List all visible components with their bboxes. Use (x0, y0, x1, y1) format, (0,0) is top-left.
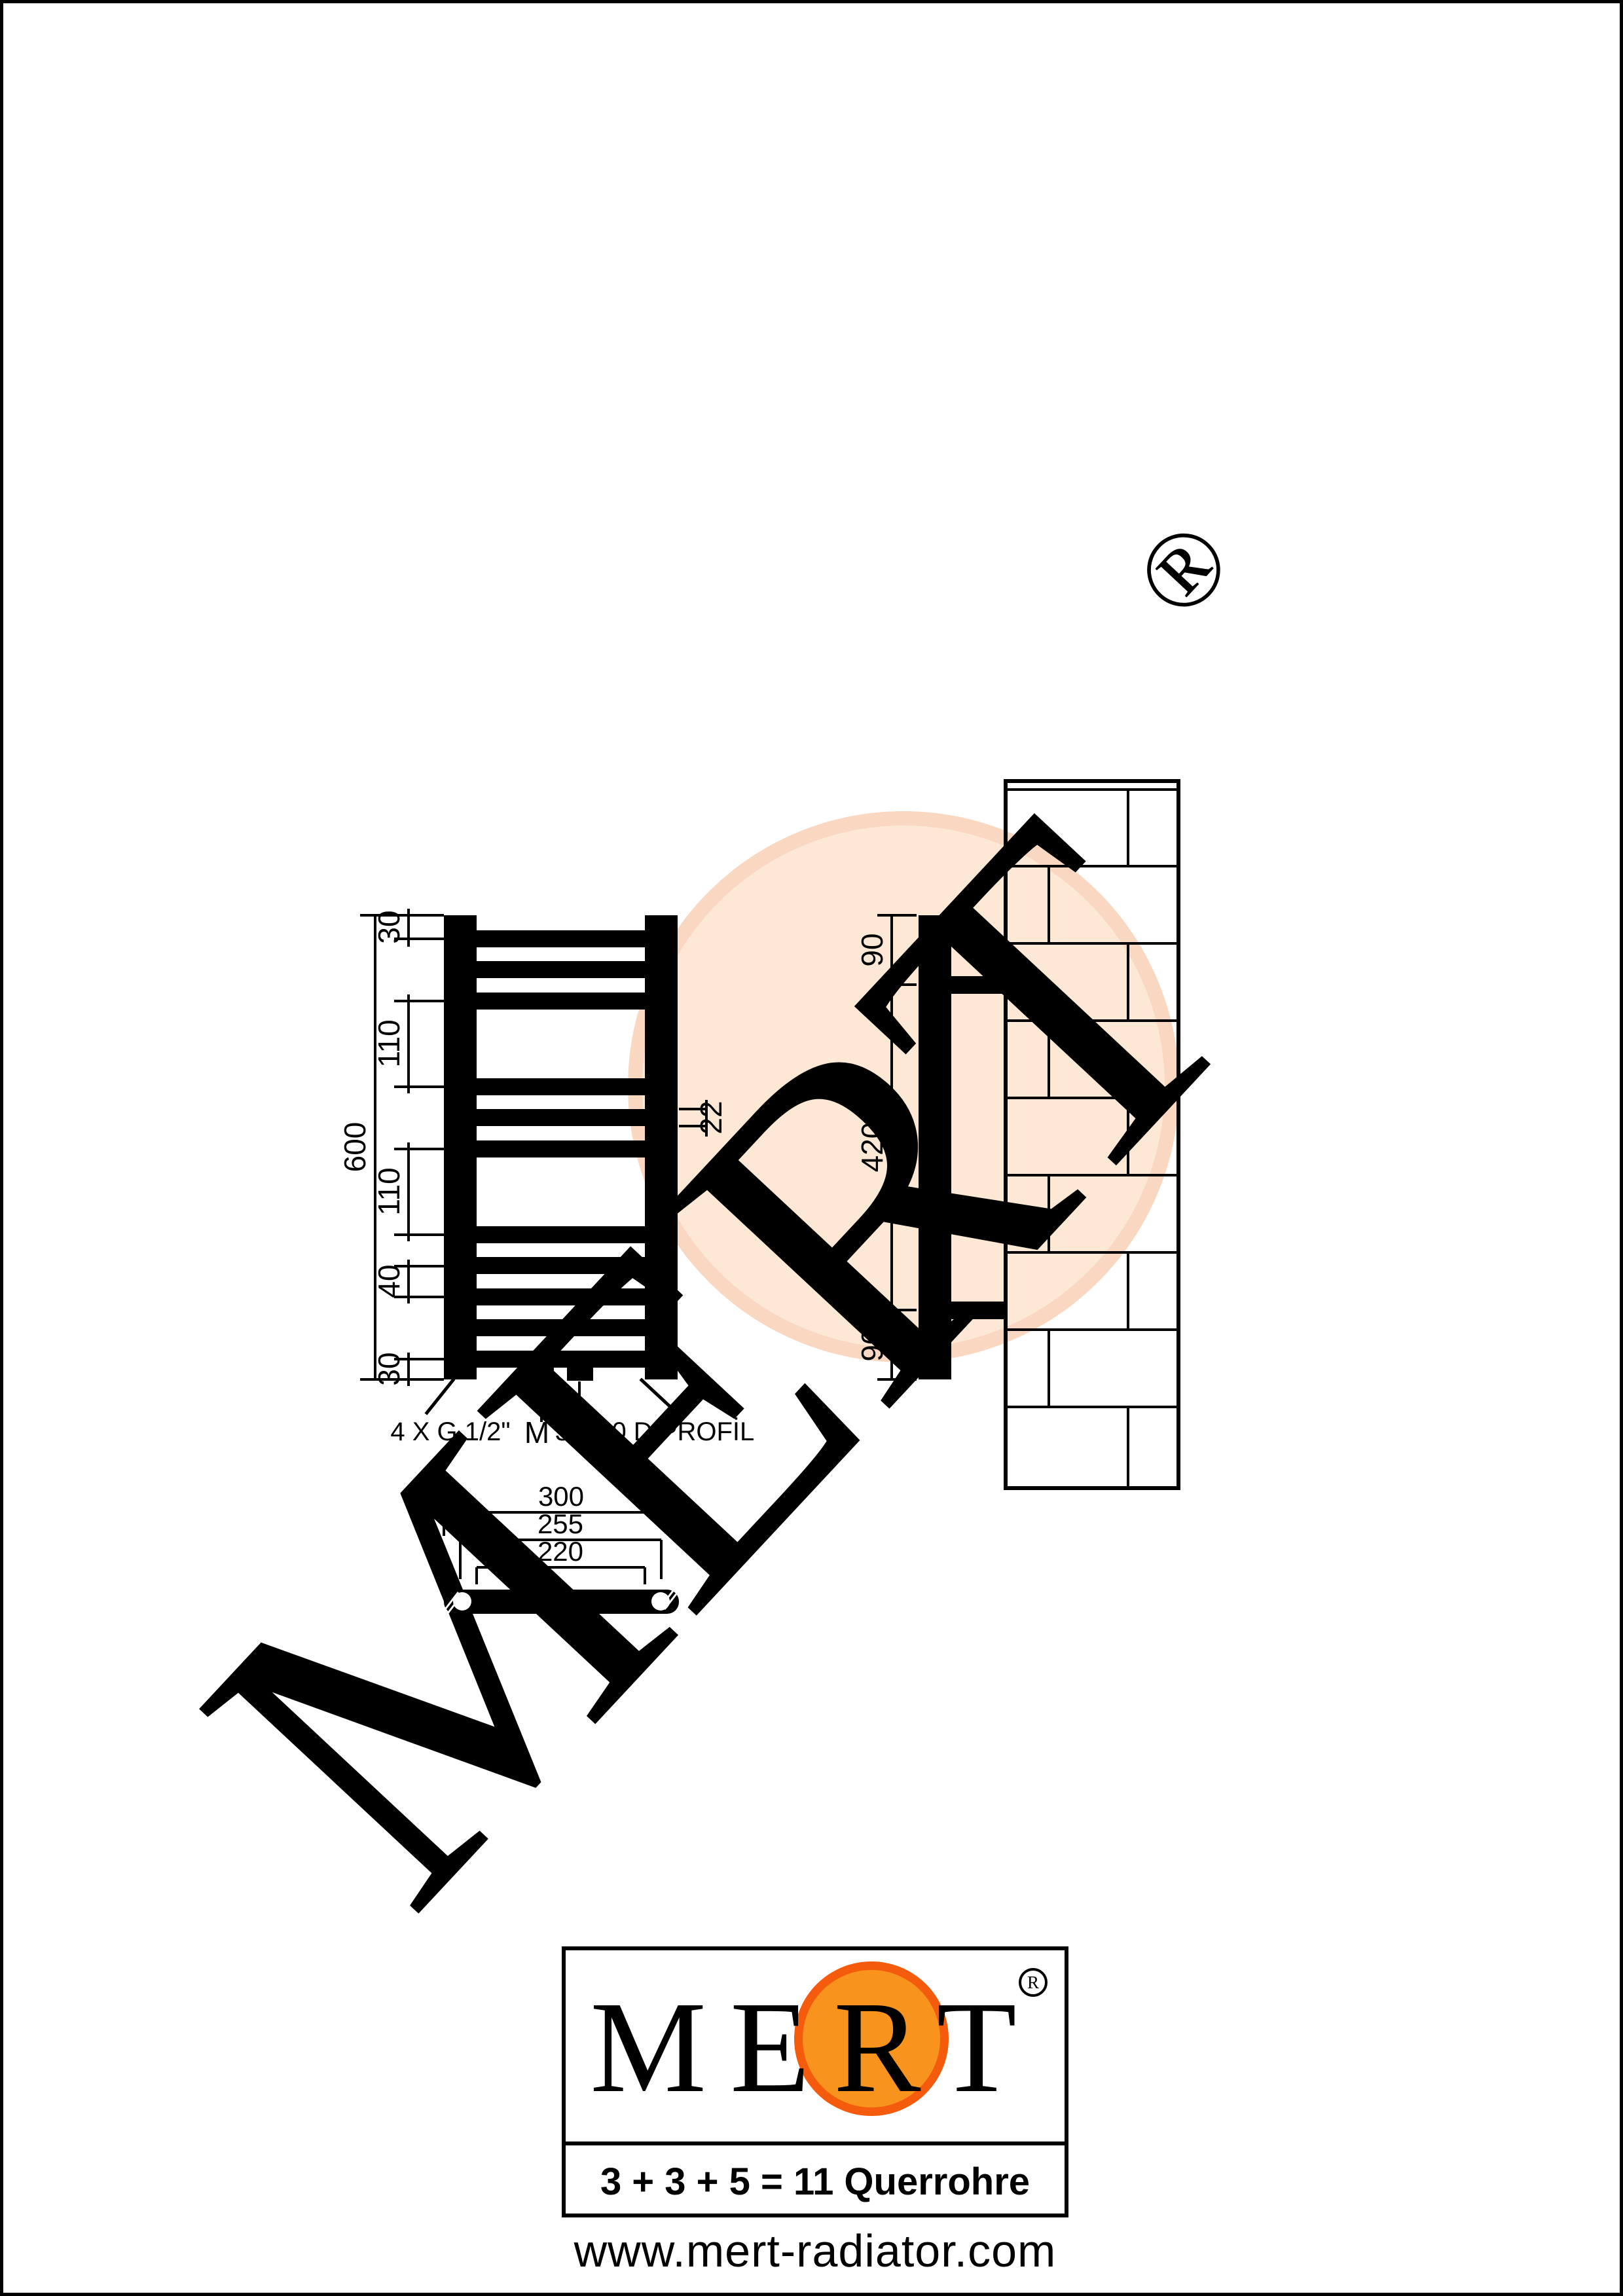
leader-connections (427, 1380, 453, 1413)
rung (474, 1226, 647, 1243)
rung (474, 1257, 647, 1274)
rung (474, 1078, 647, 1095)
dim-90-top-label: 90 (855, 933, 889, 966)
dim-chain-lines (395, 910, 443, 1385)
top-view-right-port (651, 1592, 670, 1611)
top-view: 300 255 220 (444, 1481, 679, 1614)
rung (474, 1351, 647, 1368)
rung (474, 1319, 647, 1336)
logo-formula-text: 3 + 3 + 5 = 11 Querrohre (566, 2145, 1065, 2217)
wall-outline (1006, 781, 1178, 1488)
dim-30-top-label: 30 (372, 910, 406, 943)
front-left-tube (444, 915, 477, 1379)
website-text: www.mert-radiator.com (562, 2225, 1068, 2277)
bottom-connection-stub (529, 1368, 554, 1381)
dim-420-label: 420 (855, 1122, 889, 1173)
rung (474, 1109, 647, 1126)
label-profile: 30x40 D PROFİL (555, 1417, 755, 1446)
logo-brand-text: MERT (566, 1979, 1065, 2117)
wall-bracket-upper (949, 976, 1007, 994)
side-view: 90 420 90 (855, 915, 1007, 1379)
dim-255-label: 255 (538, 1508, 583, 1539)
front-view: 600 30 110 110 40 30 22 (338, 910, 754, 1449)
dim-40-label: 40 (372, 1264, 406, 1298)
brick-wall (1006, 781, 1178, 1488)
front-right-tube (645, 915, 678, 1379)
dim-30-bottom-label: 30 (372, 1352, 406, 1385)
dim-600-lines (361, 915, 443, 1379)
dim-110-upper-label: 110 (372, 1019, 406, 1067)
dim-90-bottom-label: 90 (855, 1328, 889, 1361)
rung (474, 930, 647, 947)
dim-600-label: 600 (338, 1122, 372, 1173)
rung (474, 993, 647, 1010)
side-profile-bar (919, 915, 951, 1379)
rung (474, 961, 647, 978)
logo-registered-icon: R (1019, 1968, 1048, 1997)
wall-mortar-rows (1006, 790, 1178, 1407)
dim-300-label: 300 (538, 1481, 584, 1512)
bottom-connection-stub (567, 1368, 593, 1381)
top-view-tube-bar (444, 1590, 679, 1614)
logo-box: MERT R 3 + 3 + 5 = 11 Querrohre (562, 1946, 1068, 2217)
label-m: M (524, 1415, 549, 1449)
dim-220-label: 220 (538, 1536, 583, 1567)
dim-50-label: 50 (545, 1383, 576, 1413)
leader-profile (642, 1380, 680, 1415)
label-connections: 4 X G 1/2" (390, 1417, 510, 1446)
dim-22-label: 22 (694, 1101, 728, 1134)
dim-110-lower-label: 110 (372, 1167, 406, 1215)
wall-bracket-lower (949, 1302, 1007, 1319)
rung (474, 1288, 647, 1305)
drawing-page: MERT ® (0, 0, 1623, 2296)
wall-brick-joints (1049, 790, 1128, 1488)
rung (474, 1140, 647, 1157)
